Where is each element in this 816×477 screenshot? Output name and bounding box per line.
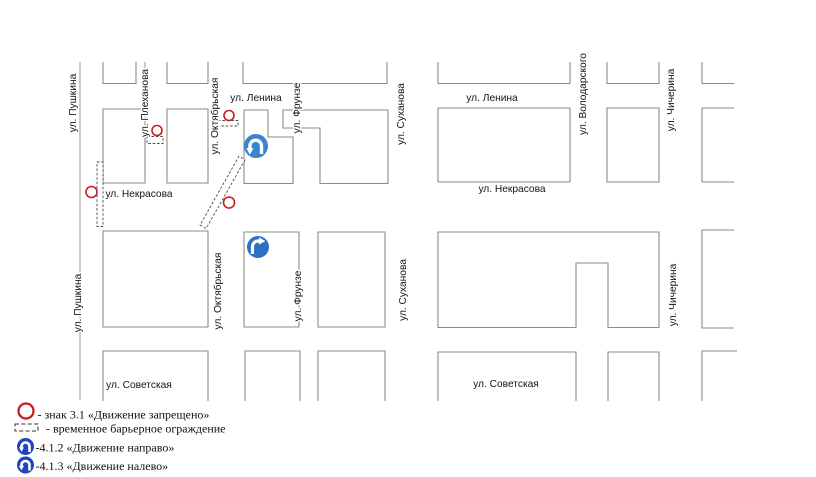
city-blocks — [103, 62, 737, 401]
street-label-oktyabrskaya: ул. Октябрьская — [209, 78, 221, 155]
city-block — [103, 62, 136, 84]
city-block — [167, 62, 208, 84]
city-block — [702, 62, 734, 84]
city-block — [608, 352, 659, 401]
no-entry-sign-icon — [86, 187, 97, 198]
street-label-frunze: ул. Фрунзе — [292, 82, 303, 133]
street-label-sovetskaya: ул. Советская — [473, 379, 539, 390]
legend-label-no-entry: - знак 3.1 «Движение запрещено» — [38, 408, 210, 422]
city-block — [245, 351, 300, 401]
no-entry-sign-icon — [19, 404, 34, 419]
street-label-frunze: ул. Фрунзе — [293, 270, 304, 321]
street-label-sukhanova: ул. Суханова — [398, 259, 409, 321]
street-label-pushkina: ул. Пушкина — [73, 273, 84, 332]
street-label-pushkina: ул. Пушкина — [68, 73, 79, 132]
city-block — [318, 351, 385, 401]
city-block — [103, 109, 145, 183]
city-block — [607, 62, 659, 84]
no-entry-sign-icon — [152, 126, 162, 136]
city-block — [103, 351, 208, 401]
street-labels: ул. Пушкина ул. Пушкина ул. Плеханова ул… — [68, 53, 679, 391]
street-label-chicherina: ул. Чичерина — [668, 263, 679, 326]
turn-left-sign-icon — [244, 134, 268, 158]
no-entry-sign-icon — [224, 197, 235, 208]
street-label-lenina: ул. Ленина — [230, 93, 282, 104]
street-label-nekrasova: ул. Некрасова — [478, 184, 545, 195]
legend-label-turn-left: -4.1.3 «Движение налево» — [36, 459, 169, 473]
barrier-icon — [15, 424, 38, 431]
city-block-with-notch — [438, 232, 659, 328]
legend-item-turn-right: -4.1.2 «Движение направо» — [17, 438, 174, 455]
street-label-lenina: ул. Ленина — [466, 93, 518, 104]
city-block — [702, 351, 737, 401]
legend-item-no-entry: - знак 3.1 «Движение запрещено» — [19, 404, 210, 422]
city-block — [438, 108, 570, 182]
legend: - знак 3.1 «Движение запрещено» - времен… — [15, 404, 226, 474]
street-label-nekrasova: ул. Некрасова — [105, 189, 172, 200]
city-block — [438, 352, 576, 401]
temporary-barrier — [218, 121, 238, 127]
city-block — [167, 109, 208, 183]
street-label-sukhanova: ул. Суханова — [396, 83, 407, 145]
scheme-canvas: ул. Пушкина ул. Пушкина ул. Плеханова ул… — [0, 0, 816, 477]
city-block — [438, 62, 570, 84]
legend-label-turn-right: -4.1.2 «Движение направо» — [36, 441, 175, 455]
city-block — [702, 108, 734, 182]
legend-item-turn-left: -4.1.3 «Движение налево» — [17, 457, 168, 474]
city-block — [243, 62, 387, 84]
road-closure-scheme: ул. Пушкина ул. Пушкина ул. Плеханова ул… — [0, 0, 816, 477]
city-block — [318, 232, 385, 327]
temporary-barrier — [97, 162, 103, 227]
turn-left-sign-icon — [17, 457, 34, 474]
legend-label-barrier: - временное барьерное ограждение — [46, 422, 226, 436]
turn-right-sign-icon — [17, 438, 34, 455]
city-block — [702, 230, 734, 328]
city-block — [607, 108, 659, 182]
street-label-chicherina: ул. Чичерина — [666, 68, 677, 131]
no-entry-sign-icon — [224, 111, 234, 121]
street-label-volodarskogo: ул. Володарского — [578, 53, 589, 135]
turn-right-sign-icon — [247, 236, 269, 258]
legend-item-barrier: - временное барьерное ограждение — [15, 422, 226, 436]
city-block — [103, 231, 208, 327]
street-label-oktyabrskaya: ул. Октябрьская — [212, 253, 224, 330]
street-label-plekhanova: ул. Плеханова — [140, 69, 151, 137]
street-label-sovetskaya: ул. Советская — [106, 380, 172, 391]
